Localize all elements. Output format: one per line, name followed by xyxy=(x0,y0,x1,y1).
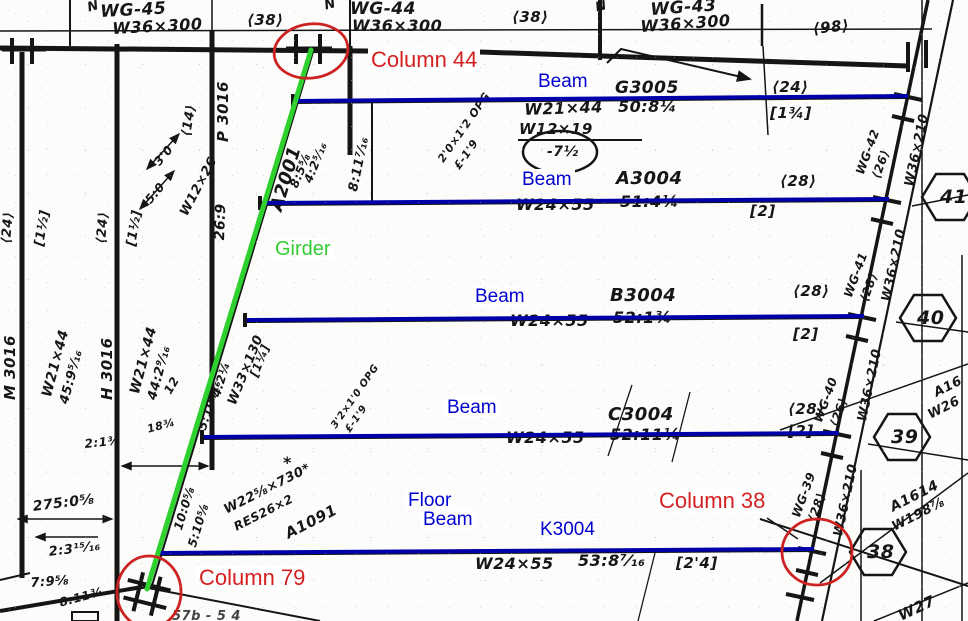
floor-beam-label-line1: Floor xyxy=(405,490,454,511)
column-38-circle xyxy=(782,519,852,585)
girder-label: Girder xyxy=(272,238,334,260)
beam-line-c3004 xyxy=(204,433,839,437)
floor-beam-mark: K3004 xyxy=(537,519,598,540)
beam-label: Beam xyxy=(472,286,528,307)
beam-line-k3004 xyxy=(158,549,814,553)
column-44-label: Column 44 xyxy=(368,48,480,72)
annotation-overlay xyxy=(0,0,968,621)
beam-line-g3005 xyxy=(295,96,908,101)
framing-plan-scan: N N N WG-45 W36×300 ⟨38⟩ WG-44 W36×300 ⟨… xyxy=(0,0,968,621)
beam-line-a3004 xyxy=(262,199,889,203)
beam-label: Beam xyxy=(535,71,591,92)
beam-label: Beam xyxy=(519,169,575,190)
column-38-label: Column 38 xyxy=(656,489,768,513)
floor-beam-label-line2: Beam xyxy=(420,509,476,530)
beam-label: Beam xyxy=(444,397,500,418)
beam-line-b3004 xyxy=(247,316,864,320)
column-79-label: Column 79 xyxy=(196,566,308,590)
